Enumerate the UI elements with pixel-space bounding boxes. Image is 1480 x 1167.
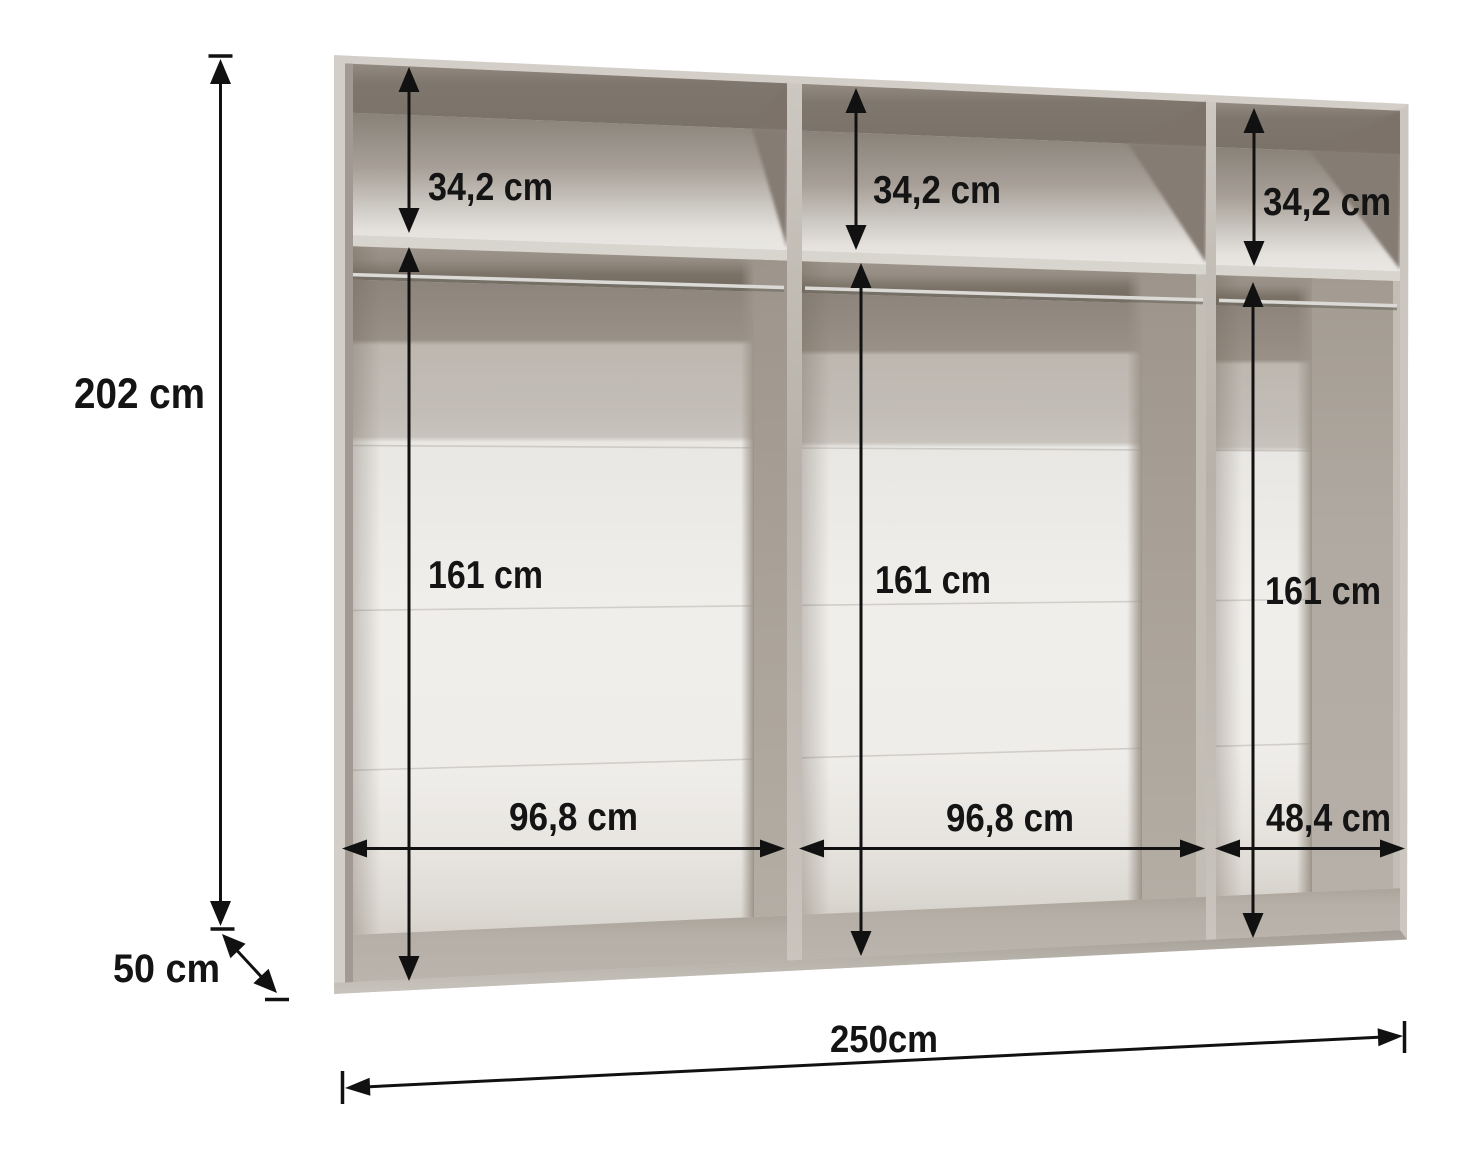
svg-text:48,4 cm: 48,4 cm [1266, 797, 1391, 840]
svg-text:50 cm: 50 cm [113, 947, 220, 991]
svg-text:161 cm: 161 cm [428, 554, 543, 597]
svg-text:34,2 cm: 34,2 cm [873, 169, 1001, 212]
svg-text:96,8 cm: 96,8 cm [509, 796, 638, 839]
svg-text:34,2 cm: 34,2 cm [428, 166, 553, 209]
svg-text:202 cm: 202 cm [74, 370, 205, 418]
svg-text:250cm: 250cm [830, 1019, 938, 1061]
svg-text:161 cm: 161 cm [1265, 570, 1381, 613]
svg-text:34,2 cm: 34,2 cm [1263, 181, 1391, 224]
svg-text:96,8 cm: 96,8 cm [946, 797, 1074, 840]
svg-text:161 cm: 161 cm [875, 559, 991, 602]
